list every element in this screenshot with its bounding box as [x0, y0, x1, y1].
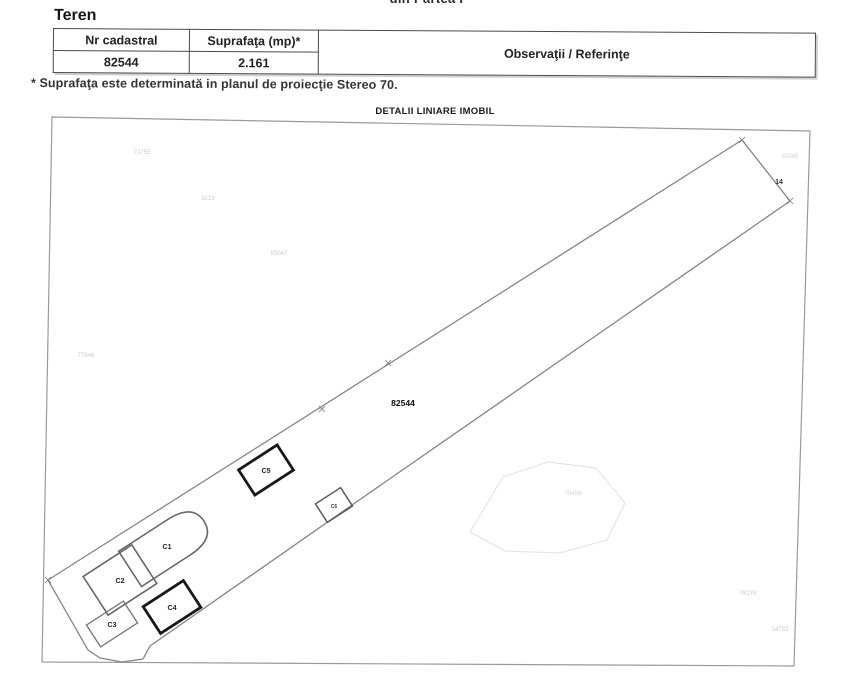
cadastral-plan: C1 C2 C3 C4 C5 C6 82544 14 73755 9219 83… [0, 0, 853, 690]
cadastral-extract-page: din Partea I Teren Nr cadastral Suprafaţ… [0, 0, 853, 690]
building-label-c3: C3 [108, 622, 117, 629]
neighbor-parcel-outline [470, 462, 625, 553]
building-label-c4: C4 [168, 605, 177, 612]
boundary-point-label: 14 [775, 179, 783, 186]
building-label-c1: C1 [163, 544, 172, 551]
neighbor-label-7: 78174 [740, 591, 757, 597]
neighbor-label-3: 83047 [271, 251, 288, 257]
building-label-c6: C6 [331, 504, 338, 510]
building-label-c5: C5 [262, 468, 271, 475]
neighbor-label-6: 78456 [565, 491, 582, 497]
parcel-number-label: 82544 [391, 398, 415, 408]
neighbor-label-1: 73755 [134, 150, 151, 156]
building-label-c2: C2 [116, 578, 125, 585]
neighbor-label-8: 14733 [772, 627, 789, 633]
neighbor-label-2: 9219 [201, 196, 215, 202]
neighbor-label-5: 82545 [782, 154, 799, 160]
neighbor-label-4: 77846 [78, 353, 95, 359]
boundary-tick-marks [45, 137, 793, 583]
parcel-outline [48, 140, 790, 662]
